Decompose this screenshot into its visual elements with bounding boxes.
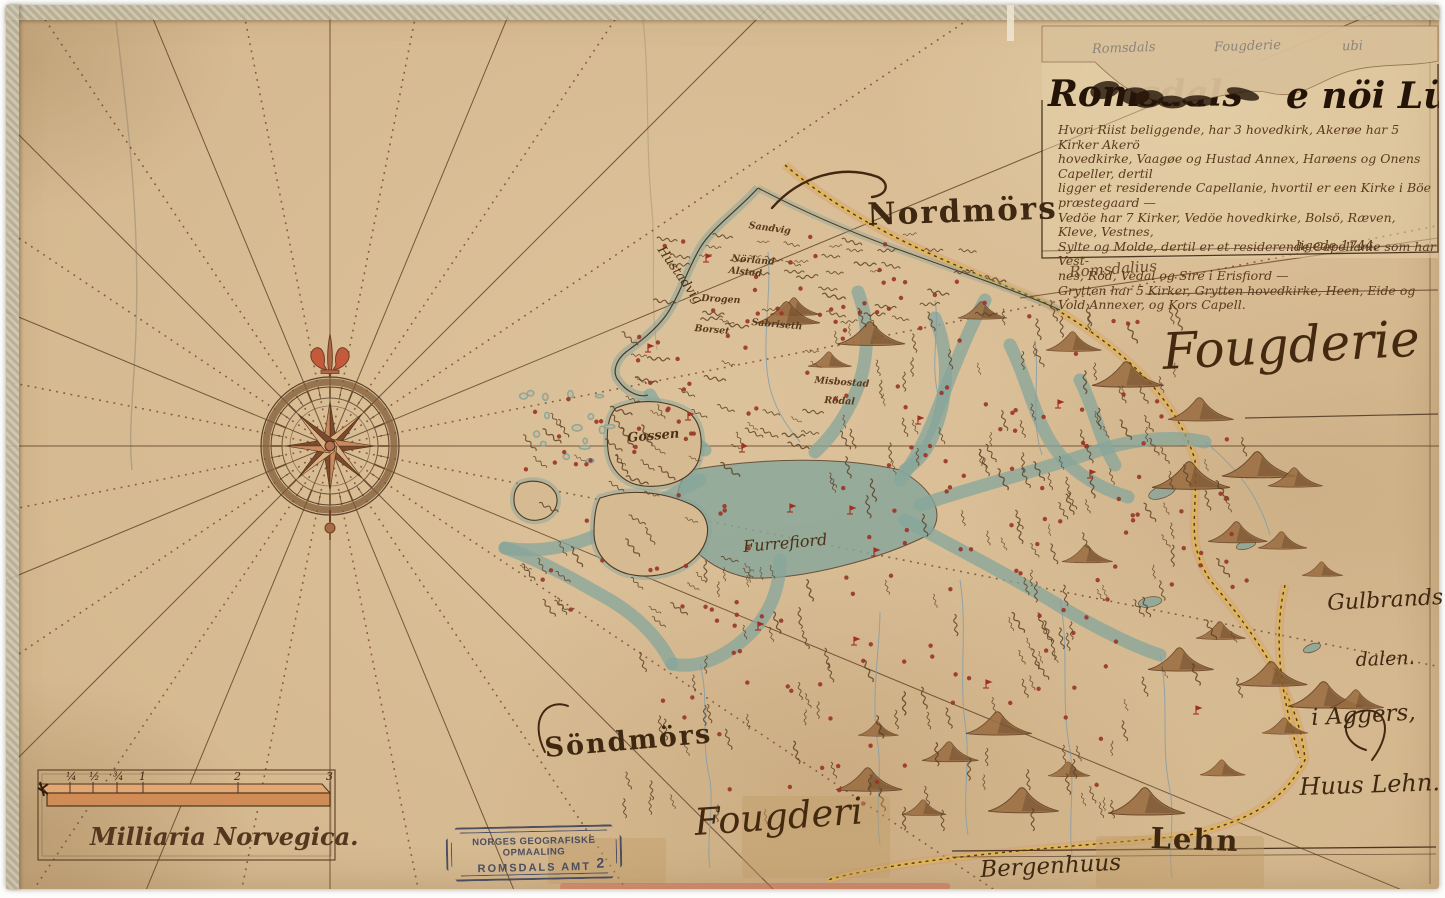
- cartouche-date: ligede 1744.: [1296, 239, 1378, 254]
- archive-stamp: NORGES GEOGRAFISKE OPMAALING ROMSDALS AM…: [445, 824, 622, 882]
- svg-text:½: ½: [89, 770, 100, 783]
- region-label-lehn: Lehn: [1150, 821, 1240, 858]
- place-name-label: Drogen: [701, 293, 741, 306]
- cartouche-line: Vold Annexer, og Kors Capell.: [1058, 298, 1436, 313]
- svg-text:1: 1: [139, 770, 146, 783]
- svg-text:3: 3: [326, 770, 333, 783]
- map-paper: Romsdalse nöi Lüng¼½¾123Milliaria Norveg…: [6, 5, 1439, 889]
- region-label-nordmors: Nordmörs: [867, 190, 1058, 233]
- paper-seam: [1007, 5, 1014, 41]
- cartouche-line: Hvori Riist beliggende, har 3 hovedkirk,…: [1058, 123, 1436, 152]
- tape-top-edge: [6, 5, 1439, 20]
- cartouche-line: hovedkirke, Vaagøe og Hustad Annex, Harø…: [1058, 152, 1436, 181]
- stamp-line-1: NORGES GEOGRAFISKE OPMAALING: [448, 834, 620, 860]
- region-label-gulbrandsdalen: Huus Lehn.: [1299, 768, 1440, 801]
- cartouche-line: Sylte og Molde, dertil er et residerende…: [1058, 240, 1436, 269]
- cartouche-line: Grytten har 5 Kirker, Grytten hovedkirke…: [1058, 284, 1436, 299]
- stamp-line-2: ROMSDALS AMT: [448, 860, 620, 876]
- cartouche-line: ligger et residerende Capellanie, hvorti…: [1058, 181, 1436, 210]
- cartouche-body-text: Hvori Riist beliggende, har 3 hovedkirk,…: [1058, 123, 1436, 313]
- cartouche-line: Vedöe har 7 Kirker, Vedöe hovedkirke, Bo…: [1058, 211, 1436, 240]
- scan-background: Romsdalse nöi Lüng¼½¾123Milliaria Norveg…: [0, 0, 1445, 898]
- place-name-label: Rödal: [824, 395, 855, 408]
- svg-text:e nöi Lüng: e nöi Lüng: [1286, 75, 1439, 117]
- region-label-gulbrandsdalen: i Aggers,: [1311, 700, 1417, 731]
- pencil-annotation: Fougderie: [1214, 38, 1281, 55]
- pencil-annotation: ubi: [1342, 39, 1363, 55]
- svg-text:2: 2: [233, 770, 241, 783]
- region-label-gulbrandsdalen: dalen.: [1355, 647, 1415, 671]
- tape-left-edge: [6, 5, 19, 889]
- svg-text:¼: ¼: [66, 770, 77, 783]
- stamp-number: 2: [596, 855, 604, 871]
- cartouche-line: nes, Röd, Vedal og Sire i Erisfiord —: [1058, 269, 1436, 284]
- pencil-annotation: Romsdals: [1092, 40, 1156, 57]
- svg-text:¾: ¾: [113, 770, 124, 783]
- svg-text:Milliaria Norvegica.: Milliaria Norvegica.: [89, 822, 358, 851]
